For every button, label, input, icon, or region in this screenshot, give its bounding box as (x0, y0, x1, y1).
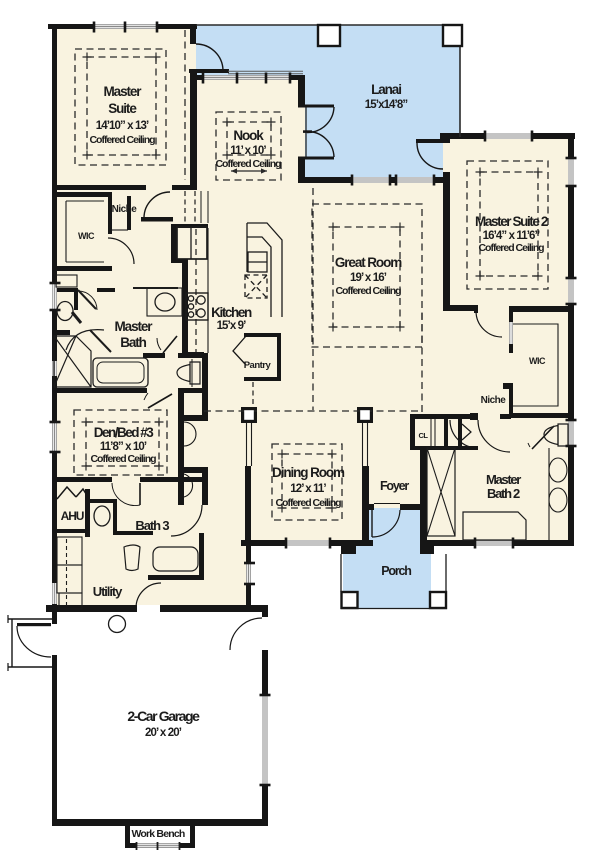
svg-text:Foyer: Foyer (380, 479, 409, 493)
svg-text:Coffered Ceiling: Coffered Ceiling (89, 134, 155, 146)
svg-text:Coffered Ceiling: Coffered Ceiling (478, 242, 544, 254)
svg-text:16’4” x 11’6”: 16’4” x 11’6” (483, 230, 540, 242)
svg-text:WIC: WIC (529, 356, 546, 366)
svg-text:Den/Bed #3: Den/Bed #3 (94, 425, 155, 440)
svg-text:Nook: Nook (233, 128, 264, 143)
svg-text:Pantry: Pantry (244, 360, 272, 371)
svg-text:12’ x 11’: 12’ x 11’ (290, 483, 326, 495)
svg-text:CL: CL (419, 431, 429, 440)
svg-text:AHU: AHU (61, 509, 84, 523)
svg-text:Bath: Bath (120, 335, 146, 350)
svg-text:Master Suite 2: Master Suite 2 (475, 214, 548, 229)
svg-text:19’ x 16’: 19’ x 16’ (350, 272, 387, 284)
svg-text:14’10” x 13’: 14’10” x 13’ (96, 120, 149, 132)
svg-text:Utility: Utility (93, 584, 123, 599)
svg-text:11’8” x 10’: 11’8” x 10’ (100, 441, 147, 453)
svg-text:Coffered Ceiling: Coffered Ceiling (90, 453, 156, 465)
svg-text:Niche: Niche (481, 395, 507, 406)
svg-text:Great Room: Great Room (335, 255, 402, 270)
svg-text:15’x 9’: 15’x 9’ (217, 320, 247, 332)
svg-text:Work Bench: Work Bench (131, 828, 184, 840)
svg-text:Porch: Porch (381, 564, 411, 578)
svg-text:WIC: WIC (78, 231, 95, 241)
svg-text:Master: Master (486, 472, 521, 487)
svg-text:Bath 3: Bath 3 (135, 518, 169, 533)
svg-text:2-Car Garage: 2-Car Garage (127, 708, 200, 724)
svg-text:Coffered Ceiling: Coffered Ceiling (215, 158, 281, 170)
svg-text:Niche: Niche (112, 204, 138, 215)
svg-text:20’ x 20’: 20’ x 20’ (145, 727, 182, 739)
svg-text:Dining Room: Dining Room (272, 465, 345, 480)
svg-text:Lanai: Lanai (371, 82, 401, 97)
svg-text:Coffered Ceiling: Coffered Ceiling (275, 497, 341, 509)
svg-text:15’x14’8”: 15’x14’8” (365, 99, 408, 111)
svg-text:11’ x 10’: 11’ x 10’ (230, 145, 266, 157)
svg-text:Coffered Ceiling: Coffered Ceiling (335, 285, 401, 297)
svg-text:Suite: Suite (108, 101, 137, 116)
svg-text:Master: Master (115, 319, 154, 334)
svg-text:Kitchen: Kitchen (211, 305, 252, 320)
svg-text:Bath 2: Bath 2 (487, 486, 520, 501)
svg-text:Master: Master (104, 84, 143, 99)
